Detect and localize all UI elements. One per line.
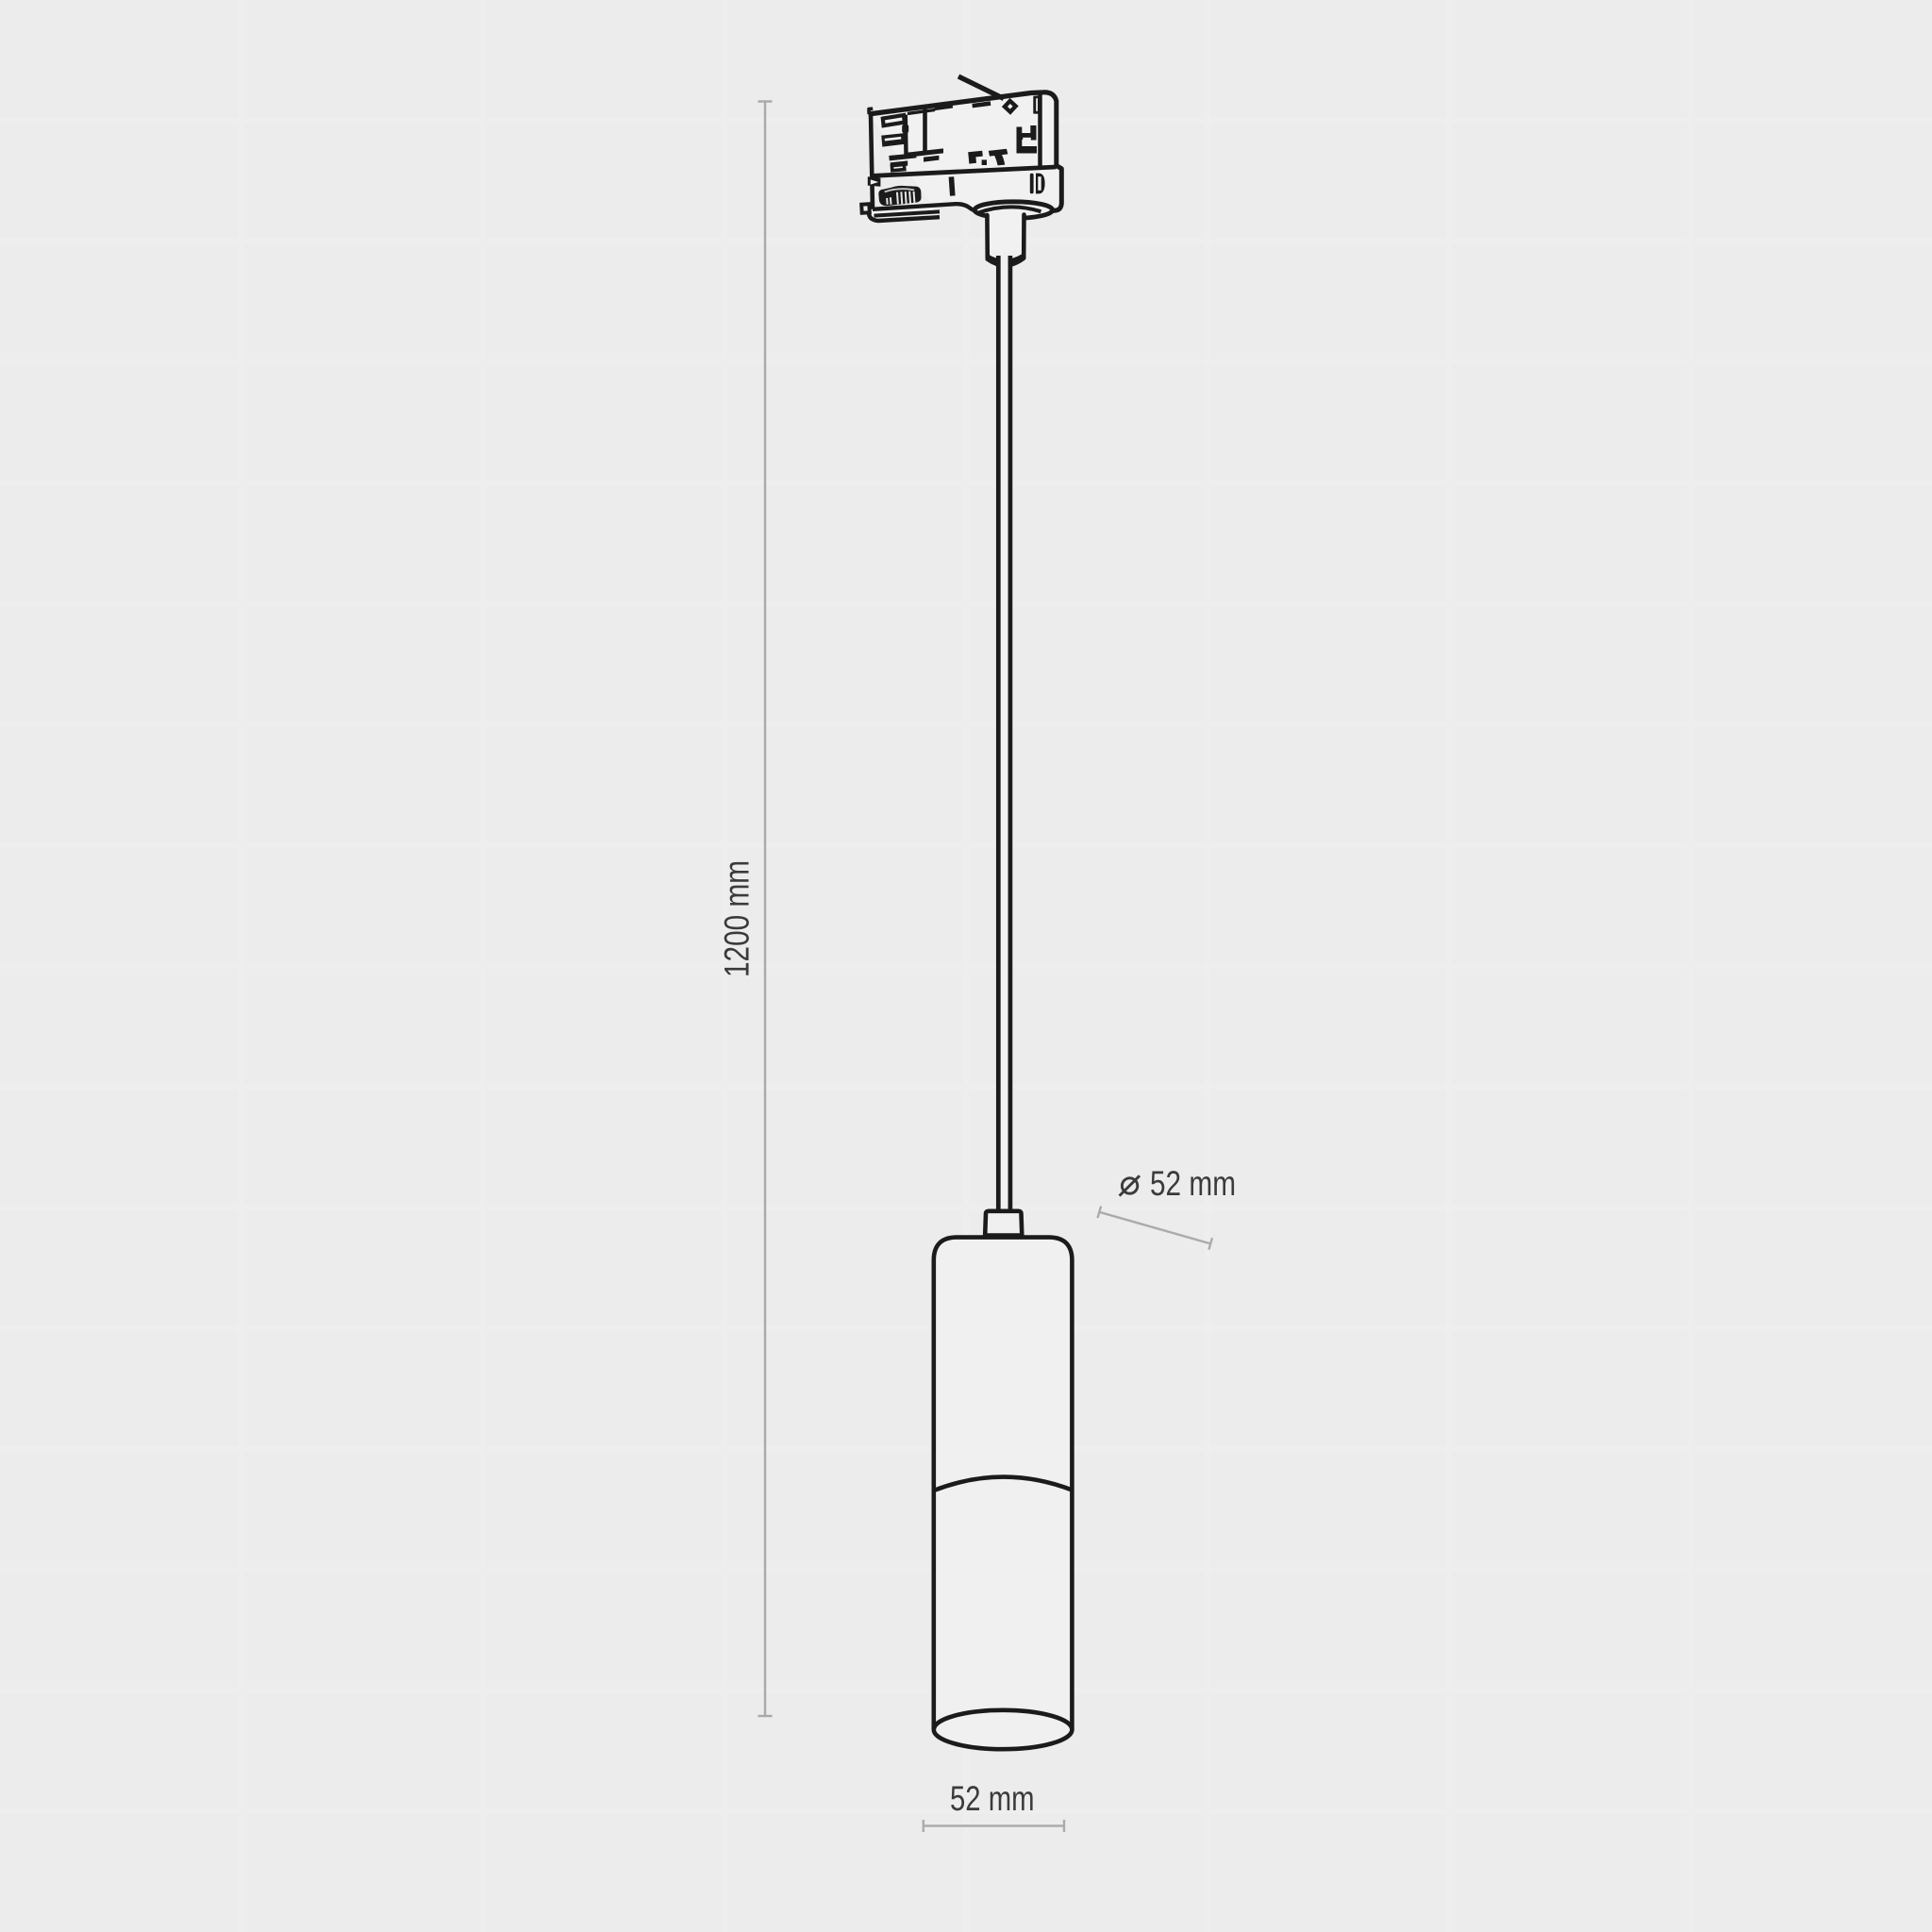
svg-text:1200 mm: 1200 mm [718,860,757,977]
svg-text:52 mm: 52 mm [1150,1164,1236,1203]
svg-text:52 mm: 52 mm [950,1779,1035,1818]
